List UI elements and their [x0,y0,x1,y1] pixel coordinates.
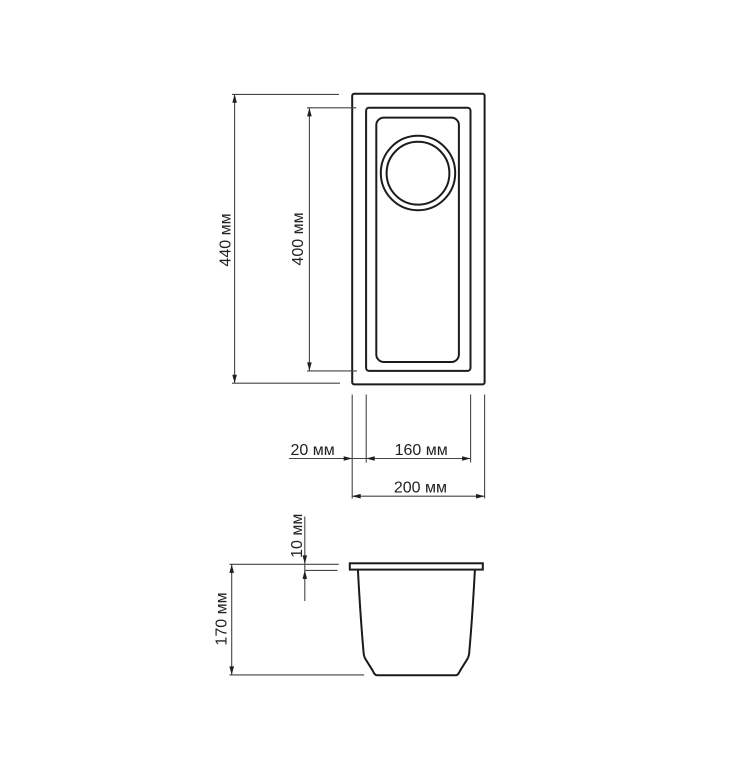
svg-text:20 мм: 20 мм [290,442,334,459]
svg-text:440 мм: 440 мм [218,213,235,266]
svg-text:400 мм: 400 мм [290,212,307,265]
svg-text:160 мм: 160 мм [395,442,448,459]
svg-text:170 мм: 170 мм [214,592,231,645]
svg-text:200 мм: 200 мм [394,480,447,497]
svg-text:10 мм: 10 мм [289,514,306,558]
